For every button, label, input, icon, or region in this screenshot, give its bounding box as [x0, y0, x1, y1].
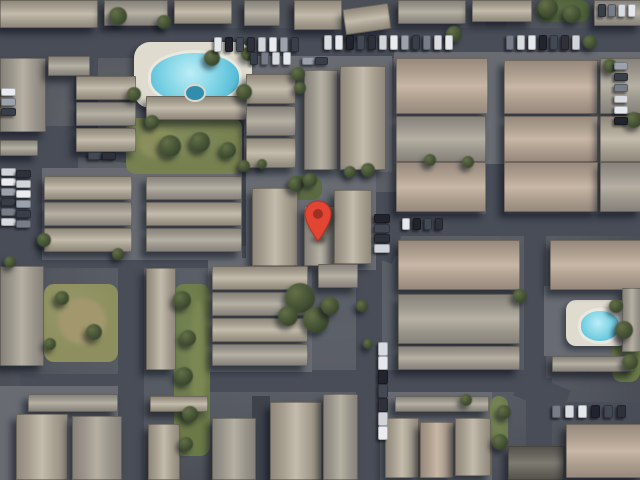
parked-car [434, 35, 442, 50]
tree [112, 248, 124, 260]
tree [497, 405, 511, 419]
building-roof [146, 176, 242, 200]
parked-car [368, 35, 376, 50]
tree [563, 5, 581, 23]
building-roof [246, 74, 296, 104]
parked-car [401, 35, 409, 50]
building-roof [334, 190, 372, 264]
parked-car [423, 35, 431, 50]
tree [321, 297, 339, 315]
tree [220, 142, 236, 158]
tree [179, 437, 193, 451]
building-roof [318, 264, 358, 288]
building-roof [508, 446, 564, 480]
building-roof [472, 0, 532, 22]
building-roof [48, 56, 90, 76]
parked-car [378, 356, 388, 370]
tree [361, 163, 375, 177]
building-roof [294, 0, 342, 30]
tree [257, 159, 267, 169]
building-roof [340, 66, 386, 170]
parked-car [614, 106, 628, 114]
parked-car [272, 52, 280, 65]
parked-car [617, 405, 626, 418]
tree [288, 176, 304, 192]
building-roof [146, 268, 176, 370]
tree [462, 156, 474, 168]
parked-car [591, 405, 600, 418]
parked-car [16, 210, 31, 218]
tree [175, 367, 193, 385]
building-roof [174, 0, 232, 24]
tree [86, 324, 102, 340]
parked-car [102, 152, 116, 160]
marker-body [305, 201, 331, 241]
tree [109, 7, 127, 25]
building-roof [600, 162, 640, 212]
parked-car [550, 35, 558, 50]
building-roof [395, 396, 489, 412]
building-roof [420, 422, 454, 478]
parked-car [614, 84, 628, 92]
parked-car [378, 384, 388, 398]
tree [173, 291, 191, 309]
tree [622, 354, 638, 370]
parked-car [16, 220, 31, 228]
parked-car [424, 218, 432, 230]
tree [127, 87, 141, 101]
parked-car [539, 35, 547, 50]
parked-car [291, 37, 299, 52]
tree [424, 154, 436, 166]
tree [37, 233, 51, 247]
tree [204, 50, 220, 66]
parked-car [378, 370, 388, 384]
tree [291, 67, 305, 81]
parked-car [506, 35, 514, 50]
parked-car [324, 35, 332, 50]
parked-car [315, 57, 328, 65]
building-roof [396, 162, 486, 212]
parked-car [445, 35, 453, 50]
tree [344, 166, 356, 178]
tree [513, 289, 527, 303]
tree [145, 115, 159, 129]
parked-car [88, 152, 102, 160]
parked-car [413, 218, 421, 230]
parked-car [390, 35, 398, 50]
parked-car [528, 35, 536, 50]
parked-car [578, 405, 587, 418]
tree [236, 84, 252, 100]
parked-car [258, 37, 266, 52]
parked-car [517, 35, 525, 50]
parked-car [604, 405, 613, 418]
parked-car [608, 4, 616, 17]
building-roof [252, 188, 298, 266]
parked-car [16, 170, 31, 178]
parked-car [378, 412, 388, 426]
building-roof [246, 106, 296, 136]
tree [190, 132, 210, 152]
tree [4, 256, 16, 268]
building-roof [212, 418, 256, 480]
parked-car [1, 88, 16, 96]
tree [157, 15, 171, 29]
tree [303, 173, 317, 187]
building-roof [146, 202, 242, 226]
building-roof [398, 294, 520, 344]
parked-car [236, 37, 244, 52]
tree [492, 434, 508, 450]
parked-car [1, 98, 16, 106]
parked-car [378, 398, 388, 412]
parked-car [302, 57, 315, 65]
marker-hole [313, 209, 323, 219]
parked-car [618, 4, 626, 17]
parked-car [1, 208, 16, 216]
parked-car [378, 426, 388, 440]
parked-car [1, 108, 16, 116]
building-roof [0, 140, 38, 156]
parked-car [412, 35, 420, 50]
parked-car [1, 188, 16, 196]
building-roof [146, 228, 242, 252]
tree [626, 112, 640, 128]
building-roof [0, 266, 44, 366]
parked-car [280, 37, 288, 52]
building-roof [76, 102, 136, 126]
parked-car [335, 35, 343, 50]
parked-car [214, 37, 222, 52]
building-roof [550, 240, 640, 290]
parked-car [572, 35, 580, 50]
parked-car [374, 214, 390, 223]
parked-car [378, 342, 388, 356]
parked-car [374, 244, 390, 253]
tree [159, 135, 181, 157]
parked-car [435, 218, 443, 230]
parked-car [628, 4, 636, 17]
tree [44, 338, 56, 350]
parked-car [16, 200, 31, 208]
parked-car [283, 52, 291, 65]
parked-car [561, 35, 569, 50]
parked-car [1, 218, 16, 226]
building-roof [270, 402, 322, 480]
building-roof [504, 162, 598, 212]
parked-car [614, 95, 628, 103]
building-roof [398, 0, 466, 24]
parked-car [1, 198, 16, 206]
parked-car [225, 37, 233, 52]
parked-car [16, 180, 31, 188]
building-roof [44, 202, 132, 226]
tree [583, 35, 597, 49]
parked-car [269, 37, 277, 52]
building-roof [455, 418, 491, 476]
parked-car [247, 37, 255, 52]
road-segment [524, 222, 546, 384]
tree [363, 339, 373, 349]
parked-car [357, 35, 365, 50]
tree [278, 306, 298, 326]
tree [609, 299, 623, 313]
parked-car [1, 178, 16, 186]
parked-car [402, 218, 410, 230]
parked-car [614, 117, 628, 125]
parked-car [552, 405, 561, 418]
building-roof [566, 424, 640, 478]
parked-car [16, 190, 31, 198]
parked-car [614, 62, 628, 70]
tree [55, 291, 69, 305]
building-roof [396, 58, 488, 114]
building-roof [385, 418, 419, 478]
building-roof [398, 240, 520, 290]
parked-car [1, 168, 16, 176]
tree [182, 406, 198, 422]
building-roof [150, 396, 208, 412]
tree [615, 321, 633, 339]
building-roof [212, 344, 308, 366]
building-roof [148, 424, 180, 480]
building-roof [0, 0, 98, 28]
tree [460, 394, 472, 406]
building-roof [72, 416, 122, 480]
parked-car [374, 224, 390, 233]
building-roof [504, 116, 598, 162]
parked-car [379, 35, 387, 50]
building-roof [244, 0, 280, 26]
spa-pool [184, 84, 206, 102]
parked-car [346, 35, 354, 50]
parked-car [598, 4, 606, 17]
tree [294, 82, 306, 94]
building-roof [323, 394, 358, 480]
satellite-map[interactable] [0, 0, 640, 480]
building-roof [504, 60, 598, 114]
location-marker[interactable] [303, 200, 333, 242]
building-roof [622, 288, 640, 352]
parked-car [250, 52, 258, 65]
building-roof [398, 346, 520, 370]
parked-car [565, 405, 574, 418]
tree [238, 160, 250, 172]
building-roof [28, 394, 118, 412]
tree [356, 300, 368, 312]
building-roof [396, 116, 486, 162]
parked-car [261, 52, 269, 65]
building-roof [76, 128, 136, 152]
road-segment [210, 370, 542, 392]
parked-car [614, 73, 628, 81]
building-roof [16, 414, 68, 480]
tree [180, 330, 196, 346]
building-roof [44, 176, 132, 200]
parked-car [374, 234, 390, 243]
building-roof [304, 70, 338, 170]
building-roof [246, 138, 296, 168]
